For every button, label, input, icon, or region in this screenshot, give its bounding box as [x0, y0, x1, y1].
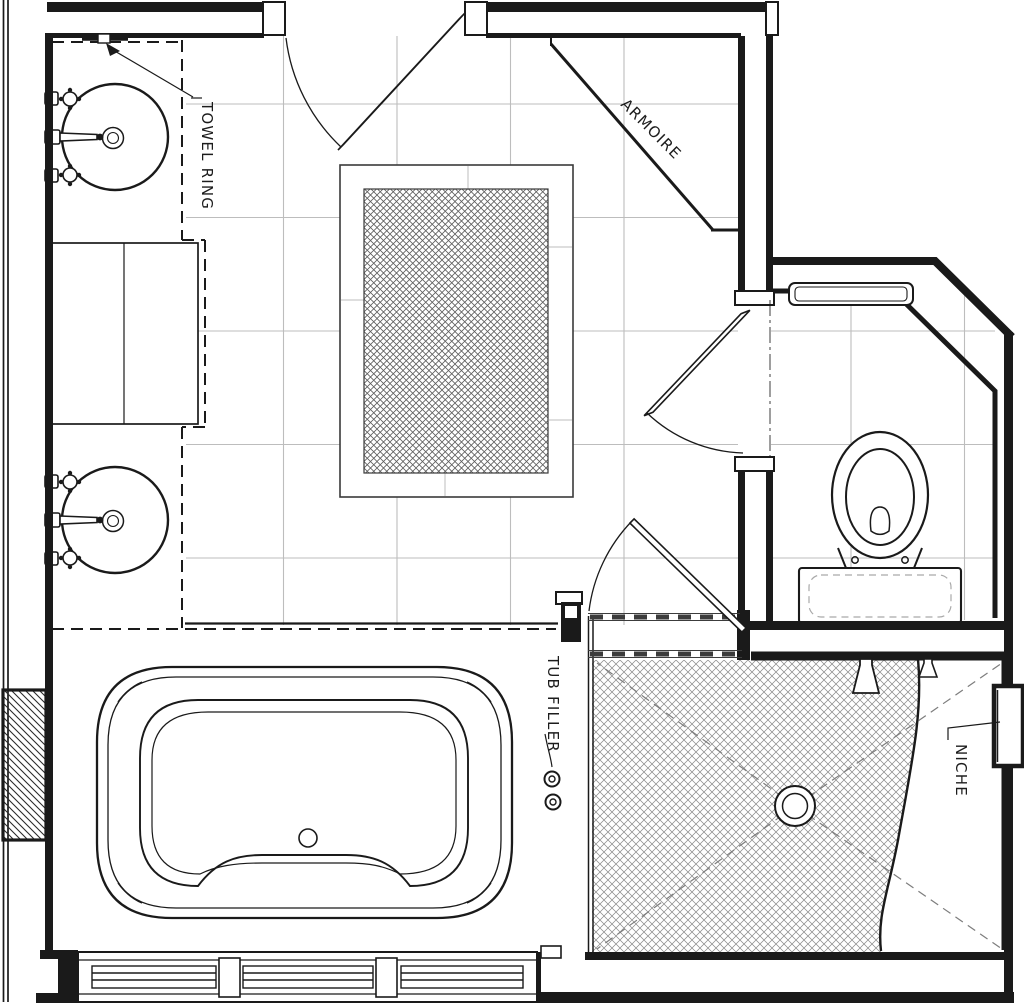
bathroom-floor-plan: TOWEL RING ARMOIRE TUB FILLER NICHE: [0, 0, 1024, 1005]
entry-door: [286, 13, 465, 150]
tub-drain: [299, 829, 317, 847]
entry-door-jamb-left: [263, 2, 285, 35]
entry-door-swing-arc: [286, 38, 341, 147]
shower-head-small: [919, 659, 937, 677]
shower-tile-hatch: [592, 660, 919, 952]
armoire-label: ARMOIRE: [617, 95, 685, 163]
toilet-room-door: [644, 300, 770, 462]
toilet-tank: [799, 568, 961, 623]
triple-window: [78, 952, 537, 1002]
window-mullion: [219, 958, 240, 997]
niche-label: NICHE: [952, 744, 970, 797]
wall-shelf: [789, 283, 913, 305]
rug-center-hatch: [364, 189, 548, 473]
vessel-sink-top: [45, 84, 168, 190]
shower-drain: [775, 786, 815, 826]
toilet: [799, 432, 961, 623]
toilet-door-jamb-top: [735, 291, 774, 305]
linen-cabinet: [52, 243, 198, 424]
wall-niche: [994, 686, 1023, 766]
tub-filler-label: TUB FILLER: [544, 655, 562, 753]
masonry-chase: [3, 690, 46, 840]
wall-end-cap: [766, 2, 778, 35]
towel-ring-label: TOWEL RING: [198, 101, 216, 210]
vessel-sink-bottom: [45, 467, 168, 573]
shower: [589, 616, 1003, 952]
floor-plan-canvas: TOWEL RING ARMOIRE TUB FILLER NICHE: [0, 0, 1024, 1005]
entry-door-jamb-right: [465, 2, 487, 35]
area-rug: [340, 165, 573, 497]
tub-corner-notches: [118, 682, 491, 903]
shower-glass-panels: [588, 614, 742, 658]
shower-door-post: [737, 610, 750, 660]
leader-arrowhead: [106, 43, 120, 56]
window-mullion: [376, 958, 397, 997]
toilet-door-swing-arc: [647, 413, 743, 453]
toilet-door-jamb-bottom: [735, 457, 774, 471]
bathtub: [97, 624, 558, 919]
shower-door-swing-arc: [589, 521, 632, 611]
